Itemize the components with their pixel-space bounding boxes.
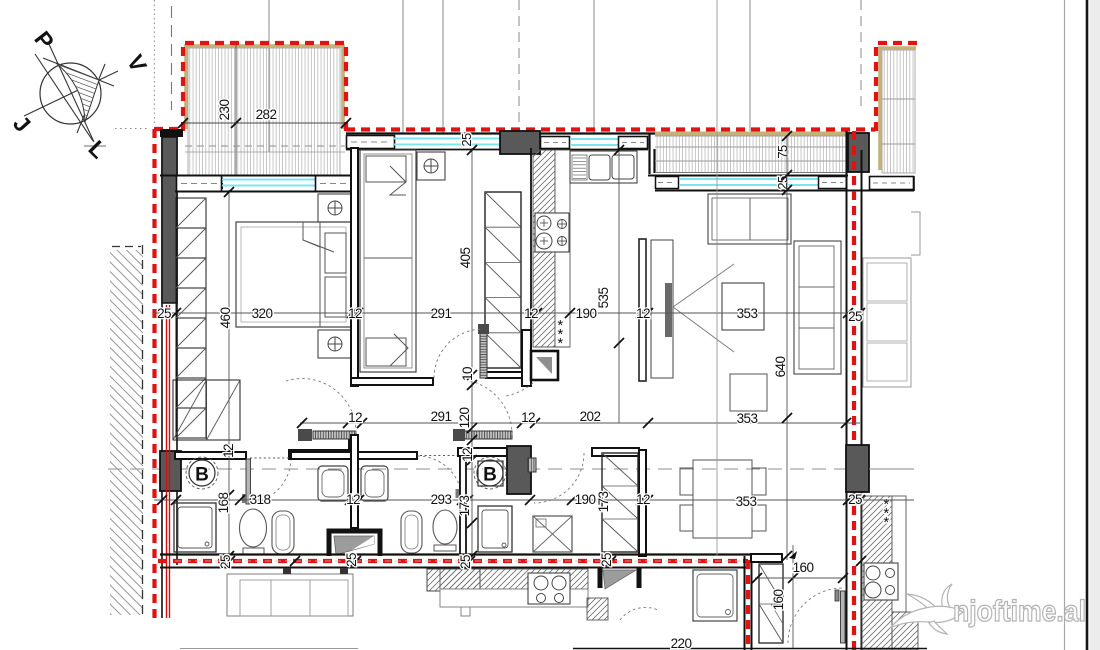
svg-text:173: 173 [457,496,472,517]
svg-text:291: 291 [431,409,452,424]
svg-text:25: 25 [458,555,473,569]
svg-text:12: 12 [346,492,360,507]
svg-text:12: 12 [524,306,538,321]
svg-text:173: 173 [596,492,611,513]
svg-text:B: B [483,465,497,486]
svg-text:12: 12 [521,410,535,425]
svg-text:25: 25 [848,309,862,324]
svg-text:353: 353 [737,306,758,321]
svg-text:25: 25 [344,553,359,567]
svg-text:168: 168 [216,493,231,514]
svg-text:75: 75 [775,145,790,159]
svg-text:10: 10 [460,367,475,381]
svg-text:202: 202 [580,409,601,424]
svg-text:12: 12 [221,444,236,458]
svg-text:460: 460 [218,308,233,329]
svg-text:282: 282 [256,107,277,122]
svg-text:25: 25 [599,553,614,567]
svg-text:njoftime.al: njoftime.al [953,595,1086,628]
svg-text:25: 25 [157,306,171,321]
svg-text:B: B [195,465,209,486]
svg-text:220: 220 [671,636,692,650]
svg-text:353: 353 [736,494,757,509]
svg-text:160: 160 [771,590,786,611]
svg-text:405: 405 [458,248,473,269]
svg-text:320: 320 [252,306,273,321]
svg-text:25: 25 [775,176,790,190]
svg-text:*: * [883,514,889,531]
svg-text:640: 640 [773,357,788,378]
svg-text:535: 535 [596,288,611,309]
svg-text:291: 291 [431,306,452,321]
svg-text:120: 120 [457,408,472,429]
svg-text:25: 25 [218,555,233,569]
svg-text:12: 12 [348,410,362,425]
svg-text:190: 190 [575,492,596,507]
svg-text:12: 12 [460,448,475,462]
svg-text:*: * [557,335,563,352]
svg-text:190: 190 [576,306,597,321]
svg-text:230: 230 [217,100,232,121]
svg-text:12: 12 [636,306,650,321]
svg-text:12: 12 [636,492,650,507]
svg-text:25: 25 [459,133,474,147]
svg-text:160: 160 [793,560,814,575]
svg-text:318: 318 [250,492,271,507]
svg-text:293: 293 [431,492,452,507]
svg-text:353: 353 [737,411,758,426]
svg-text:12: 12 [348,306,362,321]
svg-text:25: 25 [848,492,862,507]
